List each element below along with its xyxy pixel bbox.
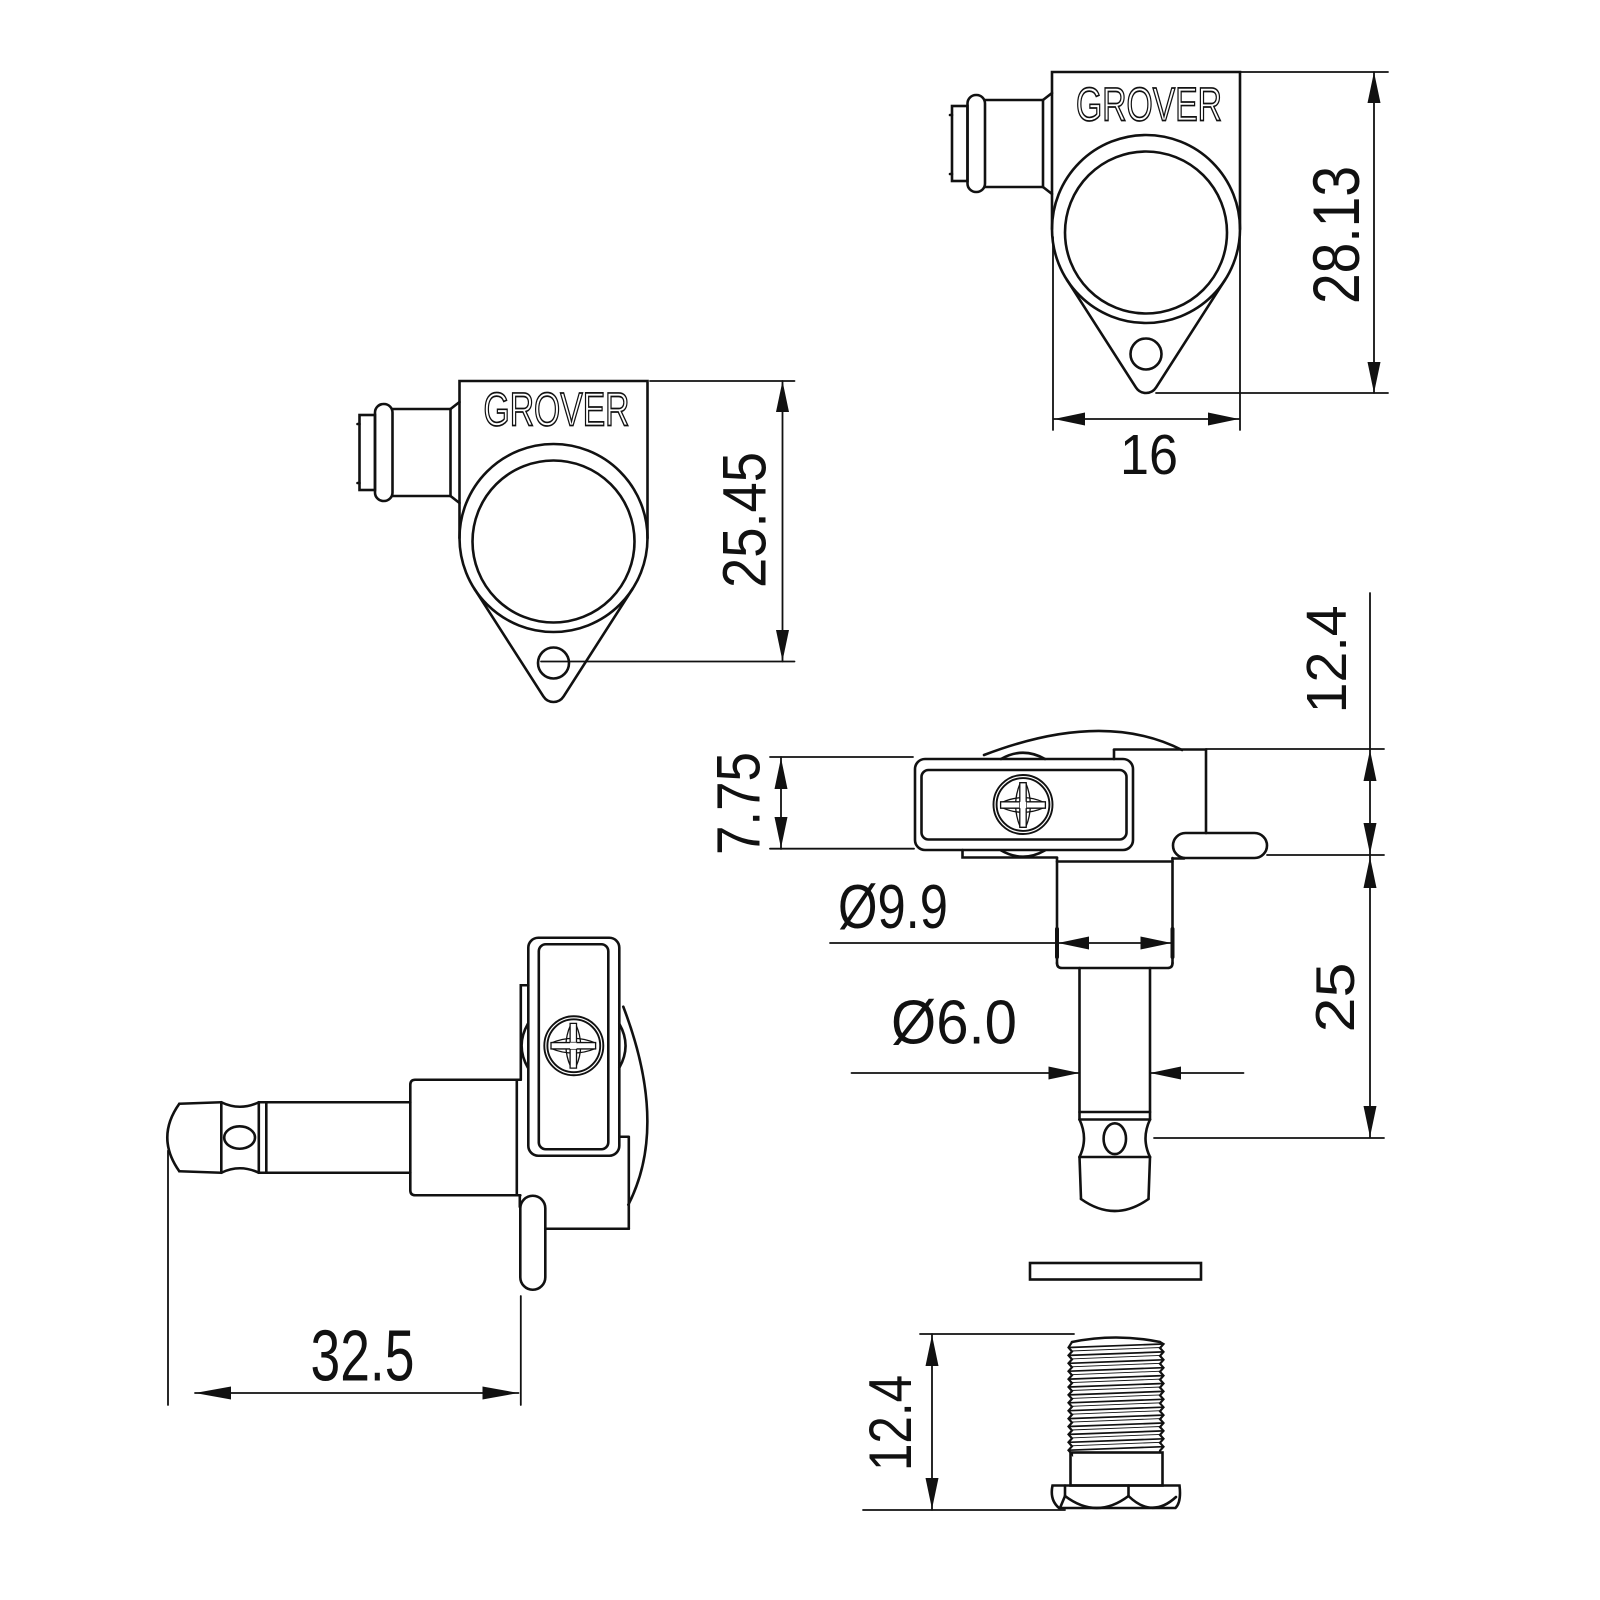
svg-text:GROVER: GROVER xyxy=(1076,79,1222,132)
svg-text:7.75: 7.75 xyxy=(704,752,772,855)
svg-text:28.13: 28.13 xyxy=(1300,166,1373,304)
svg-text:Ø6.0: Ø6.0 xyxy=(891,989,1017,1058)
svg-text:16: 16 xyxy=(1120,423,1178,487)
svg-text:25.45: 25.45 xyxy=(710,452,779,588)
svg-text:Ø9.9: Ø9.9 xyxy=(838,873,948,942)
svg-text:32.5: 32.5 xyxy=(311,1316,415,1397)
svg-text:25: 25 xyxy=(1305,963,1366,1033)
svg-text:12.4: 12.4 xyxy=(857,1375,924,1471)
svg-text:12.4: 12.4 xyxy=(1295,605,1359,713)
svg-text:GROVER: GROVER xyxy=(484,384,630,437)
